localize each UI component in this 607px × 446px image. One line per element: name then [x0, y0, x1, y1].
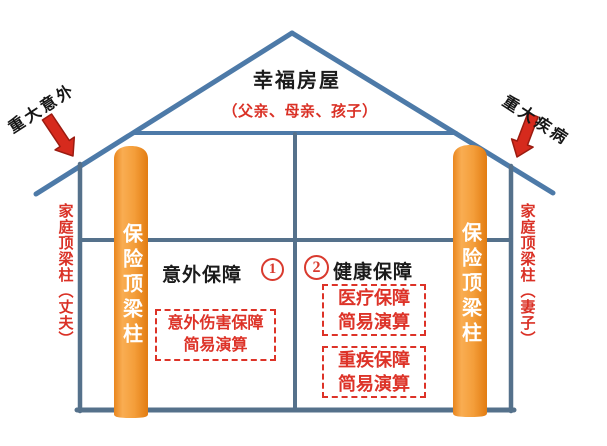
accident-calc-box: 意外伤害保障 简易演算	[155, 309, 276, 361]
insurance-house-diagram: 幸福房屋 （父亲、母亲、孩子） 重大意外 重大疾病 家庭顶梁柱（丈夫） 家庭顶梁…	[0, 0, 607, 446]
accident-calc-line2: 简易演算	[157, 335, 274, 357]
accident-room-title: 意外保障	[162, 260, 242, 287]
critical-calc-line1: 重疾保障	[324, 348, 424, 372]
circled-number-2: 2	[304, 255, 329, 280]
critical-calc-line2: 简易演算	[324, 372, 424, 396]
left-risk-arrow-icon	[42, 114, 74, 156]
left-pillar-label: 保险顶梁柱	[120, 223, 142, 358]
left-family-pillar-label: 家庭顶梁柱（丈夫）	[55, 203, 75, 353]
circled-number-1: 1	[261, 258, 284, 281]
medical-calc-line2: 简易演算	[324, 310, 424, 334]
house-title: 幸福房屋	[197, 64, 397, 93]
medical-calc-line1: 医疗保障	[324, 286, 424, 310]
accident-calc-line1: 意外伤害保障	[157, 313, 274, 335]
medical-calc-box: 医疗保障 简易演算	[322, 284, 426, 336]
health-room-title: 健康保障	[333, 257, 413, 284]
critical-illness-calc-box: 重疾保障 简易演算	[322, 346, 426, 398]
house-subtitle: （父亲、母亲、孩子）	[187, 100, 413, 121]
right-pillar-label: 保险顶梁柱	[459, 222, 481, 357]
right-family-pillar-label: 家庭顶梁柱（妻子）	[517, 203, 537, 353]
